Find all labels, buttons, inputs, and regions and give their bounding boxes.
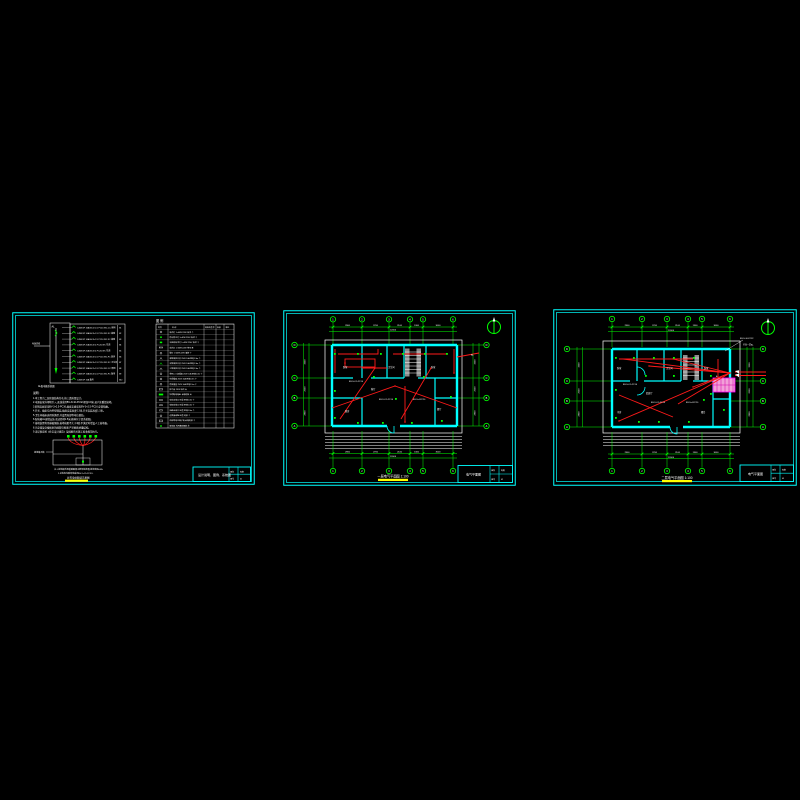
svg-text:2000: 2000 [305, 386, 307, 392]
svg-text:A: A [486, 425, 488, 428]
legend-table: 图 例 符号 名 称 规格及型号 安装 单位 [156, 318, 234, 428]
svg-text:2700: 2700 [652, 452, 658, 454]
svg-text:C45N/1P 16A BV-3×2.5 PC16 WC.F: C45N/1P 16A BV-3×2.5 PC16 WC.FC 插座 [77, 337, 115, 341]
door-arc [387, 426, 394, 433]
dimensions-bottom: 12 34 56 29002700 21001300 3000 12000 [329, 431, 457, 474]
svg-text:5: 5 [701, 318, 703, 321]
svg-text:C: C [486, 377, 488, 380]
svg-text:N7: N7 [119, 362, 121, 364]
svg-text:1: 1 [332, 470, 334, 473]
sheet-plan-floor2[interactable]: 12 34 56 29002700 21001300 3000 12000 DC… [553, 309, 797, 486]
svg-text:2800: 2800 [475, 410, 477, 416]
circuit-rows: C45N/1P 16A BV-2×2.5 PC16 WC.CC 照明N1 C45… [77, 325, 122, 381]
svg-text:D: D [762, 348, 764, 351]
device-symbols [334, 353, 452, 424]
svg-text:餐厅: 餐厅 [437, 407, 442, 411]
svg-text:6.配电箱AL嵌墙安装,底边距地1.5米,箱体尺寸见系统图。: 6.配电箱AL嵌墙安装,底边距地1.5米,箱体尺寸见系统图。 [33, 417, 93, 421]
notes-title: 说明: [33, 391, 40, 395]
svg-text:书房: 书房 [617, 410, 621, 414]
system-caption: AL配电箱系统图 [38, 384, 55, 388]
door-arc [637, 367, 645, 375]
svg-text:客厅: 客厅 [371, 387, 376, 391]
svg-text:C45N/1P 16A BV-3×2.5 PC16 WC.F: C45N/1P 16A BV-3×2.5 PC16 WC.FC 插座 [77, 331, 115, 335]
svg-text:3.照明支线采用BV-2×2.5-PC16,插座支线采用BV: 3.照明支线采用BV-2×2.5-PC16,插座支线采用BV-3×2.5-PC1… [33, 404, 110, 408]
room-labels: 卧室 客厅 卫生间 卧室 厨房 餐厅 [343, 365, 442, 413]
svg-text:2800: 2800 [749, 411, 751, 417]
svg-text:4: 4 [687, 470, 689, 473]
svg-text:3000: 3000 [436, 325, 442, 327]
equipment-box: AL [713, 375, 735, 392]
title-block: 设计说明、图例、系统图 图别 电施 图号 01 [193, 467, 251, 482]
svg-text:BV-2×2.5-PC16: BV-2×2.5-PC16 [379, 398, 394, 401]
svg-text:卧室: 卧室 [431, 365, 436, 369]
dimensions-bottom: 12 34 56 29002700 21001300 3000 12000 [608, 432, 734, 474]
dimensions-left: DC BA 3300 2000 2800 [564, 346, 612, 429]
svg-text:1: 1 [611, 470, 613, 473]
svg-text:C: C [294, 377, 296, 380]
svg-text:C: C [762, 380, 764, 383]
title-block: 电气平面图 图别 电施 图号 02 [458, 466, 513, 483]
svg-text:电施: 电施 [501, 468, 505, 472]
svg-text:1300: 1300 [693, 452, 699, 454]
dimensions-top: 12 34 56 29002700 21001300 3000 12000 [329, 317, 457, 345]
cad-canvas[interactable]: AL 电源进线 C45N/1P 16A BV-2×2.5 PC16 WC.CC … [0, 0, 800, 800]
svg-text:BV-3×2.5-PC16: BV-3×2.5-PC16 [349, 380, 364, 383]
svg-text:12000: 12000 [668, 330, 675, 332]
svg-text:A: A [566, 426, 568, 429]
callout-labels: BV-3×10-PC32 引自一层AL [740, 337, 754, 347]
svg-text:C45N/1P 16A 备用: C45N/1P 16A 备用 [77, 378, 94, 382]
svg-text:C45N/1P 16A BV-3×2.5 PC16 WC.F: C45N/1P 16A BV-3×2.5 PC16 WC.FC 备用 [77, 372, 115, 376]
svg-text:02: 02 [501, 479, 503, 481]
svg-text:C45N/1P 16A BV-3×2.5 PC16 WC.F: C45N/1P 16A BV-3×2.5 PC16 WC.FC 卫生间 [77, 360, 117, 364]
svg-text:卫生间: 卫生间 [666, 366, 673, 370]
svg-text:1: 1 [611, 318, 613, 321]
svg-text:12000: 12000 [390, 330, 397, 332]
svg-text:D: D [486, 344, 488, 347]
svg-text:1300: 1300 [414, 452, 420, 454]
entry-steps [325, 437, 462, 449]
svg-text:电施: 电施 [240, 469, 244, 473]
svg-text:2900: 2900 [625, 452, 631, 454]
svg-text:6: 6 [452, 470, 454, 473]
svg-text:4: 4 [687, 318, 689, 321]
drawing-title: 设计说明、图例、系统图 [198, 472, 231, 477]
sheet-notes-legend-system[interactable]: AL 电源进线 C45N/1P 16A BV-2×2.5 PC16 WC.CC … [12, 312, 255, 485]
svg-text:图号: 图号 [772, 476, 776, 480]
svg-text:2900: 2900 [345, 452, 351, 454]
svg-text:2100: 2100 [397, 452, 403, 454]
svg-text:5: 5 [422, 470, 424, 473]
svg-text:A: A [294, 425, 296, 428]
svg-text:5.卫生间插座选用防溅型,并设置局部等电位联结。: 5.卫生间插座选用防溅型,并设置局部等电位联结。 [33, 413, 86, 417]
svg-text:2700: 2700 [373, 452, 379, 454]
door-arc [637, 387, 645, 395]
svg-text:3300: 3300 [749, 362, 751, 368]
svg-text:C45N/1P 16A BV-3×2.5 PC16 WC.F: C45N/1P 16A BV-3×2.5 PC16 WC.FC 厨房 [77, 354, 115, 358]
plan-title: 一层电气平面图 1:100 [377, 473, 408, 478]
ground-diagram-title: 总等电位联结示意图 [67, 476, 90, 480]
plan-title: 二层电气平面图 1:100 [661, 475, 692, 480]
dimensions-top: 12 34 56 29002700 21001300 3000 12000 [608, 316, 734, 347]
svg-text:3000: 3000 [714, 325, 720, 327]
entry-steps [603, 437, 740, 446]
notes-block: 说明: 1.本工程为二层砖混结构住宅,按三类防雷设计。 2.电源由室外埋地引入,… [33, 391, 114, 434]
svg-text:4.开关、插座均为86型暗装,插座安装高度0.3米,开关安装: 4.开关、插座均为86型暗装,插座安装高度0.3米,开关安装高度1.3米。 [33, 409, 105, 413]
svg-text:引自一层AL: 引自一层AL [743, 343, 754, 347]
grounding-diagram: 接地端子箱 注:1.接地极利用基础圈梁主筋焊接连通,接地电阻≤4Ω。 2.总等电… [34, 435, 104, 482]
svg-text:N3: N3 [119, 339, 121, 341]
svg-text:6: 6 [729, 470, 731, 473]
svg-text:3000: 3000 [714, 452, 720, 454]
svg-text:2100: 2100 [675, 325, 681, 327]
breaker-icons [72, 326, 76, 380]
dimensions-left: DC BA 3300 2000 2800 [292, 342, 332, 428]
svg-text:卫生间: 卫生间 [388, 365, 395, 369]
svg-text:D: D [294, 344, 296, 347]
svg-text:C45N/1P 16A BV-2×2.5 PC16 WC.C: C45N/1P 16A BV-2×2.5 PC16 WC.CC 照明 [77, 325, 115, 329]
sheet-plan-floor1[interactable]: 12 34 56 29002700 21001300 3000 12000 DC… [283, 310, 516, 486]
svg-text:N8: N8 [119, 368, 121, 370]
ground-side-label: 接地端子箱 [34, 450, 44, 454]
svg-text:2: 2 [361, 470, 363, 473]
svg-text:C45N/1P 20A BV-3×4 PC20 WC 空调: C45N/1P 20A BV-3×4 PC20 WC 空调 [77, 343, 110, 347]
north-arrow-icon [762, 318, 775, 335]
svg-text:3: 3 [388, 318, 390, 321]
svg-text:卧室: 卧室 [617, 366, 622, 370]
svg-text:D: D [566, 348, 568, 351]
title-underline-highlight [378, 479, 408, 481]
svg-text:2.总等电位联结线采用BV-1×25-PC32。: 2.总等电位联结线采用BV-1×25-PC32。 [58, 471, 94, 475]
svg-text:C: C [566, 380, 568, 383]
north-arrow-icon [488, 317, 501, 334]
svg-text:2900: 2900 [625, 325, 631, 327]
svg-text:8.凡穿墙及穿楼板处的线管均预埋,严禁剔凿承重结构。: 8.凡穿墙及穿楼板处的线管均预埋,严禁剔凿承重结构。 [33, 425, 91, 429]
svg-text:1300: 1300 [693, 325, 699, 327]
svg-text:A: A [762, 426, 764, 429]
svg-text:1300: 1300 [414, 325, 420, 327]
svg-text:露台: 露台 [701, 410, 706, 414]
svg-text:2700: 2700 [652, 325, 658, 327]
svg-text:N10: N10 [119, 380, 122, 382]
svg-text:2.电源由室外埋地引入,进线采用BV-3×10-PC32,埋: 2.电源由室外埋地引入,进线采用BV-3×10-PC32,埋深0.8米,进户处重… [33, 400, 114, 404]
distribution-system-diagram: AL 电源进线 C45N/1P 16A BV-2×2.5 PC16 WC.CC … [32, 323, 125, 388]
svg-text:2800: 2800 [579, 411, 581, 417]
svg-text:N9: N9 [119, 374, 121, 376]
svg-text:BV-3×2.5-PC16: BV-3×2.5-PC16 [623, 383, 638, 386]
svg-text:2: 2 [641, 318, 643, 321]
svg-text:03: 03 [782, 478, 784, 480]
drawing-title: 电气平面图 [748, 471, 763, 476]
floor-plan: AL [603, 337, 766, 446]
svg-text:5: 5 [422, 318, 424, 321]
svg-text:起居厅: 起居厅 [646, 391, 653, 395]
svg-text:2000: 2000 [749, 388, 751, 394]
svg-text:2000: 2000 [475, 386, 477, 392]
svg-text:BV-3×4-PC20: BV-3×4-PC20 [686, 401, 699, 404]
svg-text:图号: 图号 [230, 477, 234, 481]
panel-label: AL [52, 326, 56, 329]
svg-text:2700: 2700 [373, 325, 379, 327]
svg-text:6: 6 [729, 318, 731, 321]
svg-text:BV-3×10-PC32: BV-3×10-PC32 [740, 337, 754, 340]
svg-text:12000: 12000 [390, 456, 397, 458]
svg-text:N5: N5 [119, 351, 121, 353]
svg-text:C45N/1P 20A BV-3×4 PC20 WC 空调: C45N/1P 20A BV-3×4 PC20 WC 空调 [77, 349, 110, 353]
svg-text:注:1.接地极利用基础圈梁主筋焊接连通,接地电阻≤4Ω。: 注:1.接地极利用基础圈梁主筋焊接连通,接地电阻≤4Ω。 [54, 467, 104, 471]
svg-text:4: 4 [409, 470, 411, 473]
svg-text:BV-3×4-PC20: BV-3×4-PC20 [413, 398, 426, 401]
svg-text:9.未尽事宜按《住宅设计规范》及国家有关施工验收规范执行。: 9.未尽事宜按《住宅设计规范》及国家有关施工验收规范执行。 [33, 430, 100, 434]
legend-title: 图 例 [156, 318, 163, 323]
svg-text:3: 3 [666, 470, 668, 473]
svg-text:图别: 图别 [230, 469, 234, 473]
svg-text:B: B [566, 400, 568, 403]
svg-text:B: B [486, 397, 488, 400]
svg-text:2100: 2100 [675, 452, 681, 454]
sheet-border [554, 310, 797, 486]
svg-text:BV-2×2.5-PC16: BV-2×2.5-PC16 [651, 401, 666, 404]
svg-text:3300: 3300 [305, 359, 307, 365]
svg-text:图别: 图别 [772, 468, 776, 472]
svg-text:12000: 12000 [668, 457, 675, 459]
svg-text:3000: 3000 [436, 452, 442, 454]
svg-text:B: B [762, 400, 764, 403]
svg-text:3: 3 [388, 470, 390, 473]
svg-text:N1: N1 [119, 327, 121, 329]
svg-text:电施: 电施 [782, 468, 786, 472]
svg-text:B: B [294, 397, 296, 400]
svg-text:厨房: 厨房 [345, 409, 349, 413]
svg-text:1.本工程为二层砖混结构住宅,按三类防雷设计。: 1.本工程为二层砖混结构住宅,按三类防雷设计。 [33, 396, 83, 400]
svg-text:N4: N4 [119, 345, 121, 347]
drawing-title: 电气平面图 [466, 472, 481, 477]
title-underline-highlight [662, 480, 692, 482]
device-symbols [615, 357, 725, 423]
stair-hatch [405, 349, 421, 377]
svg-text:3: 3 [666, 318, 668, 321]
svg-text:N2: N2 [119, 333, 121, 335]
svg-text:N6: N6 [119, 356, 121, 358]
svg-text:图别: 图别 [491, 468, 495, 472]
svg-text:7.接地装置利用基础钢筋,接地电阻不大于4欧,不满足时增设人: 7.接地装置利用基础钢筋,接地电阻不大于4欧,不满足时增设人工接地极。 [33, 421, 109, 425]
title-block: 电气平面图 图别 电施 图号 03 [740, 465, 794, 482]
svg-text:2: 2 [641, 470, 643, 473]
title-underline-highlight [65, 480, 88, 482]
svg-text:3300: 3300 [475, 359, 477, 365]
bus-arrow-icon [55, 368, 58, 374]
svg-text:01: 01 [240, 479, 242, 481]
svg-text:C45N/1P 16A BV-2×2.5 PC16 WC.C: C45N/1P 16A BV-2×2.5 PC16 WC.CC 照明 [77, 366, 115, 370]
svg-text:2: 2 [361, 318, 363, 321]
svg-text:2900: 2900 [345, 325, 351, 327]
svg-text:4: 4 [409, 318, 411, 321]
svg-text:图号: 图号 [491, 477, 495, 481]
svg-text:5: 5 [701, 470, 703, 473]
svg-text:2800: 2800 [305, 410, 307, 416]
floor-plan: 卧室 客厅 卫生间 卧室 厨房 餐厅 BV-2×2.5-PC16 BV-3×2.… [325, 340, 479, 449]
svg-text:1: 1 [332, 318, 334, 321]
incoming-label: 电源进线 [32, 342, 40, 346]
svg-text:2100: 2100 [397, 325, 403, 327]
svg-text:3300: 3300 [579, 362, 581, 368]
svg-text:6: 6 [452, 318, 454, 321]
svg-text:2000: 2000 [579, 388, 581, 394]
